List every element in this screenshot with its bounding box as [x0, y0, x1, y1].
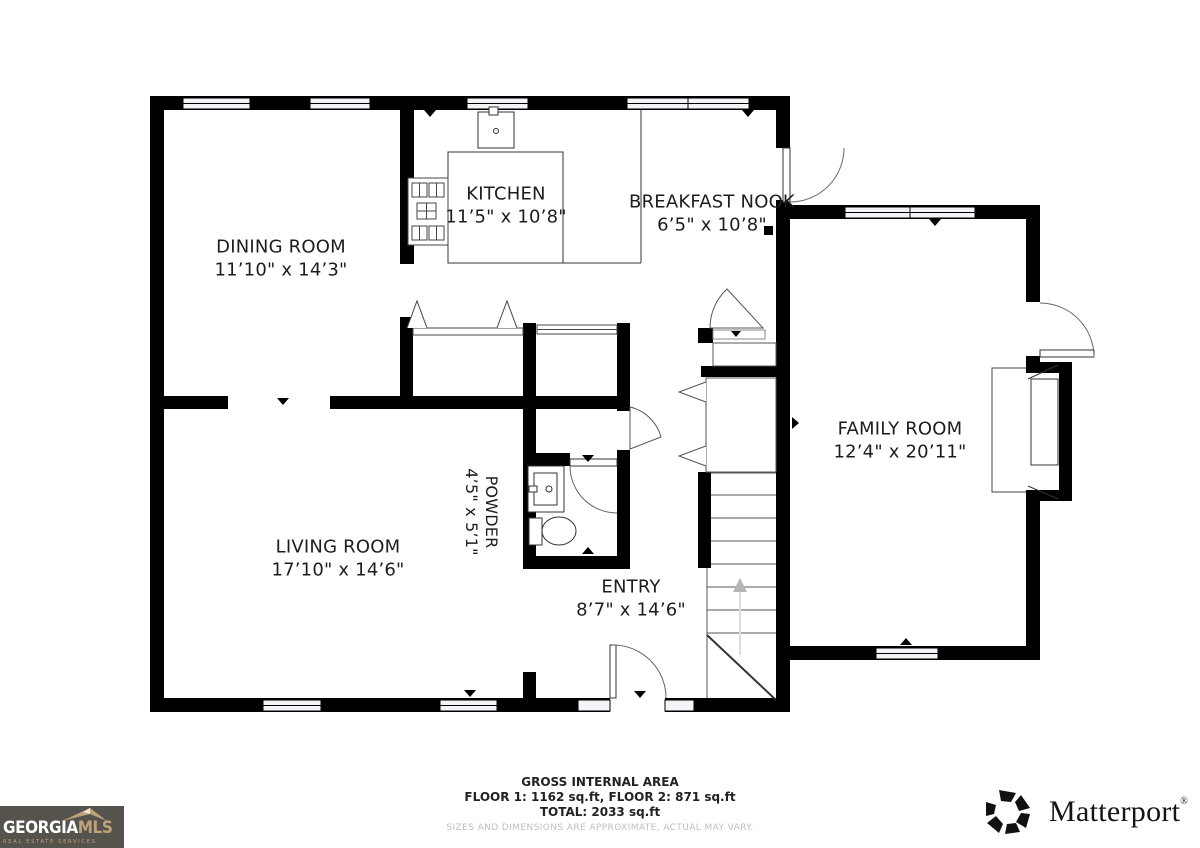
- floor-plan-drawing: [0, 0, 1200, 848]
- room-dims: 4’5" x 5’1": [461, 468, 481, 555]
- room-label-family: FAMILY ROOM 12’4" x 20’11": [833, 419, 966, 464]
- room-label-powder: POWDER 4’5" x 5’1": [461, 468, 501, 555]
- hall-closet-bifold-doors: [407, 301, 523, 335]
- powder-sink-icon: [528, 466, 564, 512]
- room-label-dining: DINING ROOM 11’10" x 14’3": [214, 237, 347, 282]
- room-label-entry: ENTRY 8’7" x 14’6": [576, 577, 686, 622]
- stairs-up-arrow: [733, 578, 747, 655]
- room-name: POWDER: [482, 476, 501, 549]
- family-room-exterior-door: [1040, 303, 1094, 357]
- pantry-closet: [679, 343, 776, 472]
- closet-sliding-door: [537, 325, 617, 334]
- toilet-icon: [529, 517, 576, 545]
- room-dims: 12’4" x 20’11": [833, 441, 966, 464]
- matterport-text: Matterport: [1049, 795, 1180, 828]
- kitchen-sink-icon: [478, 107, 514, 148]
- fireplace: [992, 362, 1072, 501]
- room-dims: 17’10" x 14’6": [271, 559, 404, 582]
- matterport-logo: Matterport®: [985, 789, 1188, 835]
- matterport-wordmark: Matterport®: [1049, 795, 1188, 829]
- room-dims: 11’5" x 10’8": [445, 206, 566, 229]
- mls-text: MLS: [78, 818, 113, 838]
- room-name: LIVING ROOM: [276, 537, 401, 558]
- georgia-mls-tagline: REAL ESTATE SERVICES: [3, 839, 96, 845]
- stove-icon: [408, 178, 448, 245]
- room-dims: 8’7" x 14’6": [576, 599, 686, 622]
- georgia-mls-logo: GEORGIAMLS REAL ESTATE SERVICES: [0, 806, 124, 848]
- living-hall-door: [630, 407, 661, 449]
- matterport-pinwheel-icon: [985, 789, 1031, 835]
- powder-room-door: [570, 459, 617, 513]
- floor-plan-page: DINING ROOM 11’10" x 14’3" KITCHEN 11’5"…: [0, 0, 1200, 848]
- georgia-text: GEORGIA: [3, 818, 78, 838]
- room-name: FAMILY ROOM: [838, 419, 963, 440]
- room-name: ENTRY: [601, 577, 660, 598]
- georgia-mls-wordmark: GEORGIAMLS: [3, 820, 112, 837]
- room-dims: 6’5" x 10’8": [627, 214, 797, 237]
- room-label-breakfast-nook: BREAKFAST NOOK 6’5" x 10’8": [627, 192, 797, 237]
- room-label-kitchen: KITCHEN 11’5" x 10’8": [445, 184, 566, 229]
- entry-front-door: [610, 645, 666, 698]
- room-name: BREAKFAST NOOK: [629, 192, 795, 213]
- room-dims: 11’10" x 14’3": [214, 259, 347, 282]
- room-name: KITCHEN: [466, 184, 545, 205]
- room-label-living: LIVING ROOM 17’10" x 14’6": [271, 537, 404, 582]
- footer-title: GROSS INTERNAL AREA: [0, 775, 1200, 790]
- registered-trademark-symbol: ®: [1180, 796, 1188, 807]
- room-name: DINING ROOM: [216, 237, 346, 258]
